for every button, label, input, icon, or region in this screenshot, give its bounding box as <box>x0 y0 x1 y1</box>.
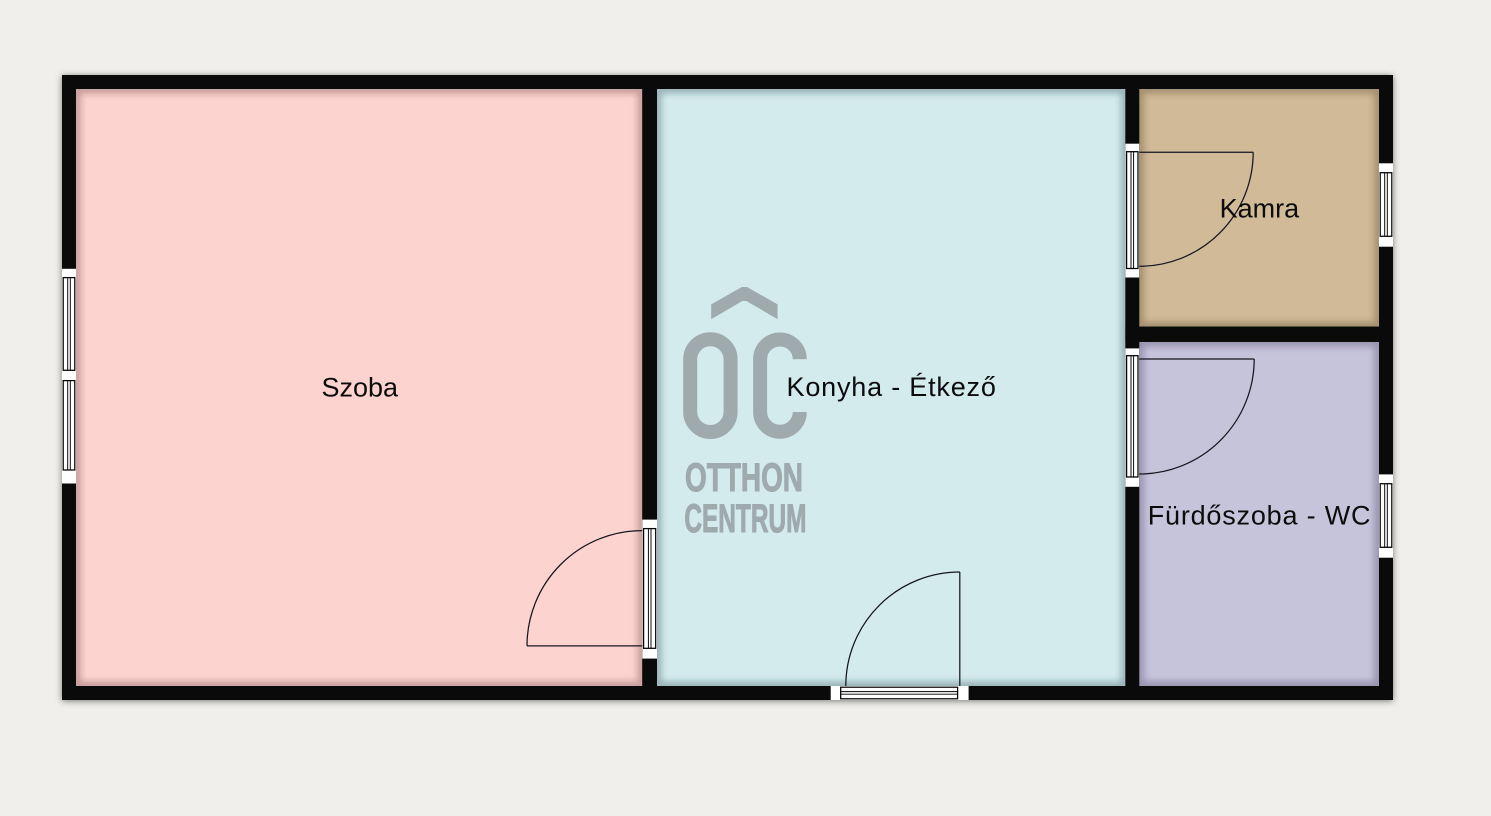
svg-text:Kamra: Kamra <box>1220 194 1301 224</box>
svg-text:Szoba: Szoba <box>322 373 400 403</box>
svg-text:Konyha - Étkező: Konyha - Étkező <box>787 372 997 402</box>
svg-text:CENTRUM: CENTRUM <box>684 497 806 541</box>
svg-text:Fürdőszoba - WC: Fürdőszoba - WC <box>1148 500 1372 530</box>
svg-text:OTTHON: OTTHON <box>685 456 803 500</box>
